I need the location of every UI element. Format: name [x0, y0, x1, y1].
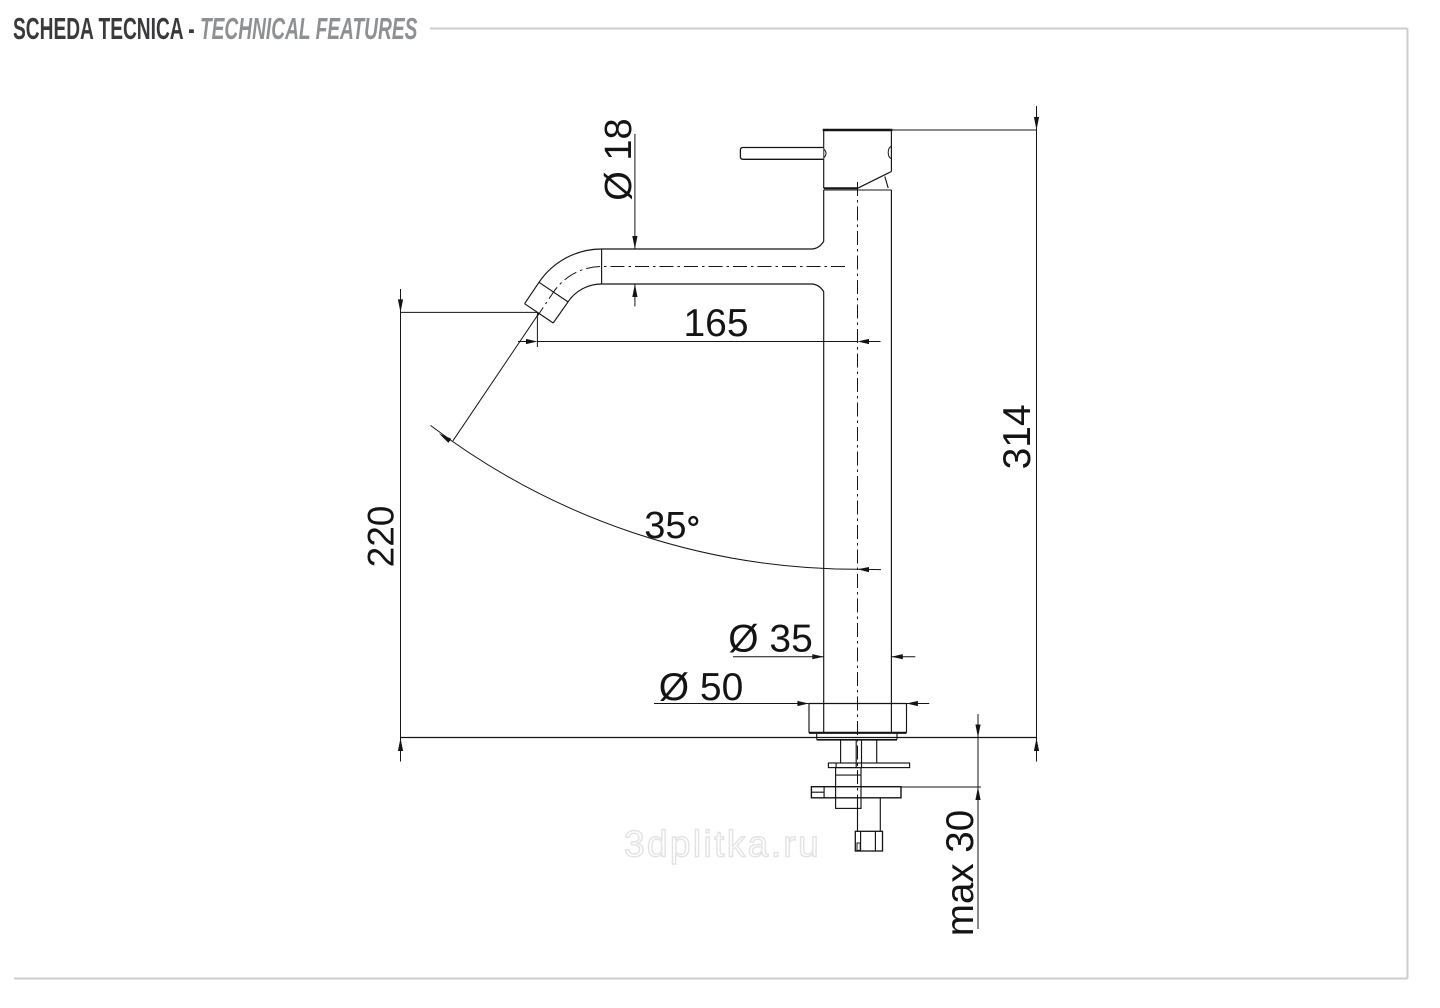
svg-text:3dplitka.ru: 3dplitka.ru: [624, 824, 821, 865]
svg-text:Ø 50: Ø 50: [659, 666, 744, 709]
svg-text:max 30: max 30: [939, 810, 982, 936]
svg-text:Ø 18: Ø 18: [598, 118, 640, 200]
svg-text:314: 314: [996, 404, 1039, 469]
svg-text:220: 220: [361, 506, 402, 568]
svg-text:35: 35: [644, 505, 686, 547]
svg-text:Ø 35: Ø 35: [728, 618, 813, 661]
svg-text:165: 165: [683, 302, 748, 345]
